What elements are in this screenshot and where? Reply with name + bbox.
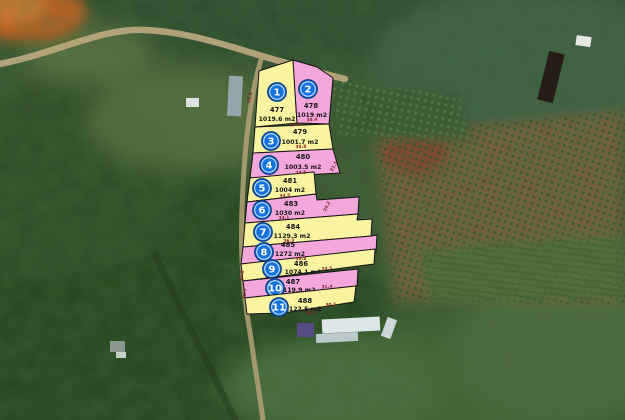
dimension-label: 30.1 [325, 302, 336, 309]
dimension-label: 36.3 [283, 238, 294, 245]
parcel-number-badge[interactable]: 5 [253, 179, 271, 197]
parcel: 4791001.7 m23 [253, 124, 333, 153]
parcel-number-badge[interactable]: 7 [254, 223, 272, 241]
parcel-number: 3 [268, 137, 275, 148]
dimension-label: 31.8 [246, 92, 254, 104]
dimension-label: 34.1 [278, 215, 289, 222]
parcel-number-badge[interactable]: 9 [263, 260, 281, 278]
parcel: 4781019 m22 [293, 60, 333, 124]
parcel-plot-id: 484 [286, 223, 300, 231]
parcel-number: 5 [259, 184, 266, 195]
dimension-label: 34.5 [279, 193, 290, 200]
parcel-number-badge[interactable]: 3 [262, 132, 280, 150]
parcel-plot-id: 488 [298, 297, 312, 305]
parcel: 4771019.6 m21 [255, 60, 297, 127]
dimension-label: 31.4 [321, 284, 332, 291]
parcel-number-badge[interactable]: 4 [260, 156, 278, 174]
dimension-label: 24.4 [289, 122, 300, 129]
parcel-number-badge[interactable]: 1 [268, 83, 286, 101]
parcel-area: 1019.6 m2 [259, 116, 296, 123]
parcel-number: 2 [305, 85, 312, 96]
parcel-number: 9 [269, 265, 276, 276]
dimension-label: 35.8 [295, 256, 306, 263]
parcel-number: 10 [268, 284, 282, 295]
dimension-label: 24.5 [295, 170, 306, 177]
dimension-label: 24.5 [321, 266, 332, 273]
parcel-plot-id: 478 [304, 102, 318, 110]
parcel-number: 11 [272, 303, 286, 314]
parcel-plot-id: 483 [284, 200, 298, 208]
parcel-number-badge[interactable]: 6 [253, 201, 271, 219]
parcel-number: 8 [261, 248, 268, 259]
parcel-number: 1 [274, 88, 281, 99]
dimension-label: 35.8 [295, 144, 306, 151]
parcel-number-badge[interactable]: 11 [270, 298, 288, 316]
parcel-number-badge[interactable]: 2 [299, 80, 317, 98]
parcel-number: 6 [259, 206, 266, 217]
parcel-number: 7 [260, 228, 267, 239]
parcel-plot-id: 487 [286, 278, 300, 286]
parcel-plot-id: 477 [270, 106, 284, 114]
parcel-plot-id: 480 [296, 153, 310, 161]
parcel-plot-id: 481 [283, 177, 297, 185]
dimension-label: 35.4 [306, 117, 317, 124]
dimension-label: 50.1 [305, 310, 316, 317]
satellite-map: 4771019.6 m214781019 m224791001.7 m23480… [0, 0, 625, 420]
parcel-number: 4 [266, 161, 273, 172]
parcel-number-badge[interactable]: 8 [255, 243, 273, 261]
parcel-plot-id: 479 [293, 128, 307, 136]
parcel-overlay-layer: 4771019.6 m214781019 m224791001.7 m23480… [0, 0, 625, 420]
